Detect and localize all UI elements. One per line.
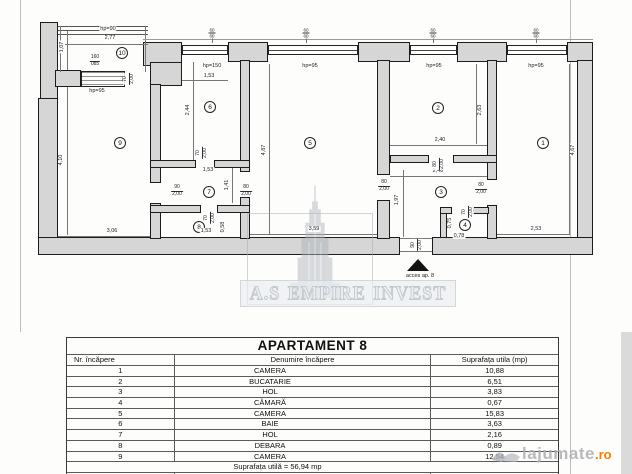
dimension-label: hp=90 xyxy=(99,26,116,32)
wall xyxy=(377,60,390,175)
table-cell: 9 xyxy=(67,452,174,462)
table-cell: CAMERA xyxy=(174,452,431,462)
dim-line xyxy=(403,170,404,237)
door-size-label: 902,00 xyxy=(411,239,423,251)
table-cell: 5 xyxy=(67,409,174,419)
table-row: 9CAMERA12,54 xyxy=(67,451,558,462)
window xyxy=(182,45,228,55)
table-title: APARTAMENT 8 xyxy=(67,338,558,354)
table-cell: 7 xyxy=(67,430,174,440)
wall xyxy=(473,207,489,214)
wall xyxy=(150,84,161,183)
header-room-name: Denumire încăpere xyxy=(174,355,430,365)
door-size-label: 702,00 xyxy=(204,212,216,224)
dim-chain-line xyxy=(143,39,593,40)
wall xyxy=(150,62,182,86)
balcony-edge xyxy=(145,26,146,72)
entrance-line xyxy=(400,251,432,252)
wall xyxy=(432,237,593,255)
lajumate-text: lajumate xyxy=(522,444,595,464)
table-body: 1CAMERA10,882BUCATARIE6,513HOL3,834CĂMAR… xyxy=(67,365,558,461)
access-label: acces ap. 8 xyxy=(406,273,434,279)
room-number-10: 10 xyxy=(116,47,128,59)
dim-line xyxy=(58,236,150,237)
door-size-label: 802,00 xyxy=(433,158,445,170)
dimension-label: 4,87 xyxy=(261,144,267,157)
dimension-label: 2,44 xyxy=(185,104,191,117)
dim-line xyxy=(62,44,148,45)
dim-line xyxy=(269,64,270,234)
table-cell: 0,67 xyxy=(430,398,558,408)
dimension-label: 4,67 xyxy=(570,144,576,157)
wall xyxy=(440,207,452,214)
dimension-label: 2,77 xyxy=(104,35,117,41)
room-number-6: 6 xyxy=(204,101,216,113)
window xyxy=(410,45,457,55)
door-size-label: 802,00 xyxy=(240,185,252,197)
watermark-text: A.S EMPIRE INVEST xyxy=(250,282,447,306)
door-size-label: 6060 xyxy=(429,28,436,39)
table-cell: 8 xyxy=(67,441,174,451)
table-cell: 4 xyxy=(67,398,174,408)
table-row: 2BUCATARIE6,51 xyxy=(67,376,558,387)
watermark-band: A.S EMPIRE INVEST xyxy=(240,280,456,307)
wall xyxy=(150,205,201,213)
door-size-label: 702,00 xyxy=(123,73,135,85)
table-cell: 3 xyxy=(67,387,174,397)
table-cell: HOL xyxy=(174,430,431,440)
dim-line xyxy=(67,87,68,235)
dimension-label: 2,63 xyxy=(477,104,483,117)
lajumate-logo-icon xyxy=(490,444,522,464)
table-row: 5CAMERA15,83 xyxy=(67,408,558,419)
table-cell: 3,83 xyxy=(430,387,558,397)
door-size-label: 802,00 xyxy=(378,180,390,192)
wall xyxy=(577,60,593,255)
table-cell: 6 xyxy=(67,419,174,429)
wall xyxy=(150,160,196,168)
dimension-label: 2,53 xyxy=(530,226,543,232)
area-table: APARTAMENT 8 Nr. încăpere Denumire încăp… xyxy=(66,337,559,474)
wall xyxy=(567,42,593,62)
window xyxy=(507,45,567,55)
table-cell: 6,51 xyxy=(430,377,558,387)
dim-line xyxy=(232,168,233,203)
wall xyxy=(453,155,497,163)
dimension-label: 1,53 xyxy=(202,167,215,173)
table-row: 6BAIE3,63 xyxy=(67,418,558,429)
dim-line xyxy=(497,234,570,235)
table-cell: BAIE xyxy=(174,419,431,429)
wall xyxy=(358,42,410,62)
scan-artifact-strip xyxy=(621,332,632,474)
dimension-label: 1,53 xyxy=(203,73,216,79)
dimension-label: hp=95 xyxy=(88,88,105,94)
room-number-4: 4 xyxy=(459,219,471,231)
dimension-label: 1,41 xyxy=(224,179,230,192)
table-cell: 10,88 xyxy=(430,366,558,376)
door-size-label: 702,00 xyxy=(462,206,474,218)
wall xyxy=(240,60,250,172)
room-number-2: 2 xyxy=(432,102,444,114)
table-cell: CĂMARĂ xyxy=(174,398,431,408)
wall xyxy=(377,200,390,239)
room-number-3: 3 xyxy=(435,186,447,198)
table-header-row: Nr. încăpere Denumire încăpere Suprafața… xyxy=(67,354,558,365)
door-size-label: 6060 xyxy=(532,28,539,39)
table-cell: HOL xyxy=(174,387,431,397)
wall xyxy=(217,205,250,213)
wall xyxy=(214,160,250,168)
wall xyxy=(228,42,268,62)
table-row: 7HOL2,16 xyxy=(67,429,558,440)
table-cell: 3,63 xyxy=(430,419,558,429)
header-room-area: Suprafața utila (mp) xyxy=(430,355,558,365)
dim-line xyxy=(193,62,194,160)
dim-line xyxy=(67,31,68,70)
dimension-label: 1,07 xyxy=(59,41,65,54)
wall xyxy=(390,155,429,163)
lajumate-watermark: lajumate .ro xyxy=(490,441,612,467)
lajumate-tld: .ro xyxy=(595,447,612,462)
wall xyxy=(40,22,58,103)
door-size-label: 902,00 xyxy=(171,185,183,197)
dimension-label: hp=95 xyxy=(527,63,544,69)
door-size-label: 160085 xyxy=(90,55,100,67)
table-cell: CAMERA xyxy=(174,409,431,419)
table-cell: 15,83 xyxy=(430,409,558,419)
dimension-label: 0,75 xyxy=(447,217,453,230)
door-size-label: 702,00 xyxy=(196,147,208,159)
dimension-label: hp=95 xyxy=(301,63,318,69)
wall xyxy=(55,70,81,87)
door-size-label: 6060 xyxy=(208,28,215,39)
dim-line xyxy=(390,176,487,177)
table-cell: CAMERA xyxy=(174,366,431,376)
table-cell: 1 xyxy=(67,366,174,376)
table-row: 1CAMERA10,88 xyxy=(67,365,558,376)
dimension-label: 0,78 xyxy=(453,233,466,239)
table-row: 8DEBARA0,89 xyxy=(67,440,558,451)
dimension-label: 0,58 xyxy=(220,221,226,234)
table-cell: 2,16 xyxy=(430,430,558,440)
dim-line xyxy=(182,80,228,81)
subtotal-row: Suprafața utilă = 56,94 mp xyxy=(67,461,558,472)
dimension-label: 3,59 xyxy=(308,226,321,232)
wall xyxy=(457,42,507,62)
dimension-label: 1,97 xyxy=(394,194,400,207)
header-room-number: Nr. încăpere xyxy=(67,355,174,365)
table-cell: BUCATARIE xyxy=(174,377,431,387)
dimension-label: 3,06 xyxy=(106,228,119,234)
table-cell: DEBARA xyxy=(174,441,431,451)
dimension-label: hp=95 xyxy=(425,63,442,69)
room-number-1: 1 xyxy=(537,137,549,149)
window xyxy=(268,45,358,55)
floorplan-sheet: A.S EMPIRE INVEST acces ap. 8 1234567891… xyxy=(0,0,632,474)
dimension-label: 2,40 xyxy=(434,137,447,143)
floor-plan: A.S EMPIRE INVEST acces ap. 8 1234567891… xyxy=(0,0,632,332)
window-sill xyxy=(81,71,125,87)
dimension-label: 1,53 xyxy=(200,228,213,234)
room-number-5: 5 xyxy=(304,137,316,149)
table-cell: 2 xyxy=(67,377,174,387)
wall xyxy=(38,98,58,255)
dimension-label: hp=150 xyxy=(202,63,223,69)
room-number-9: 9 xyxy=(114,137,126,149)
dim-line xyxy=(390,145,487,146)
dimension-label: 4,10 xyxy=(58,154,64,167)
room-number-7: 7 xyxy=(203,186,215,198)
table-row: 3HOL3,83 xyxy=(67,386,558,397)
entrance-arrow-icon xyxy=(407,259,429,271)
table-row: 4CĂMARĂ0,67 xyxy=(67,397,558,408)
door-size-label: 6060 xyxy=(302,28,309,39)
door-size-label: 802,00 xyxy=(475,183,487,195)
